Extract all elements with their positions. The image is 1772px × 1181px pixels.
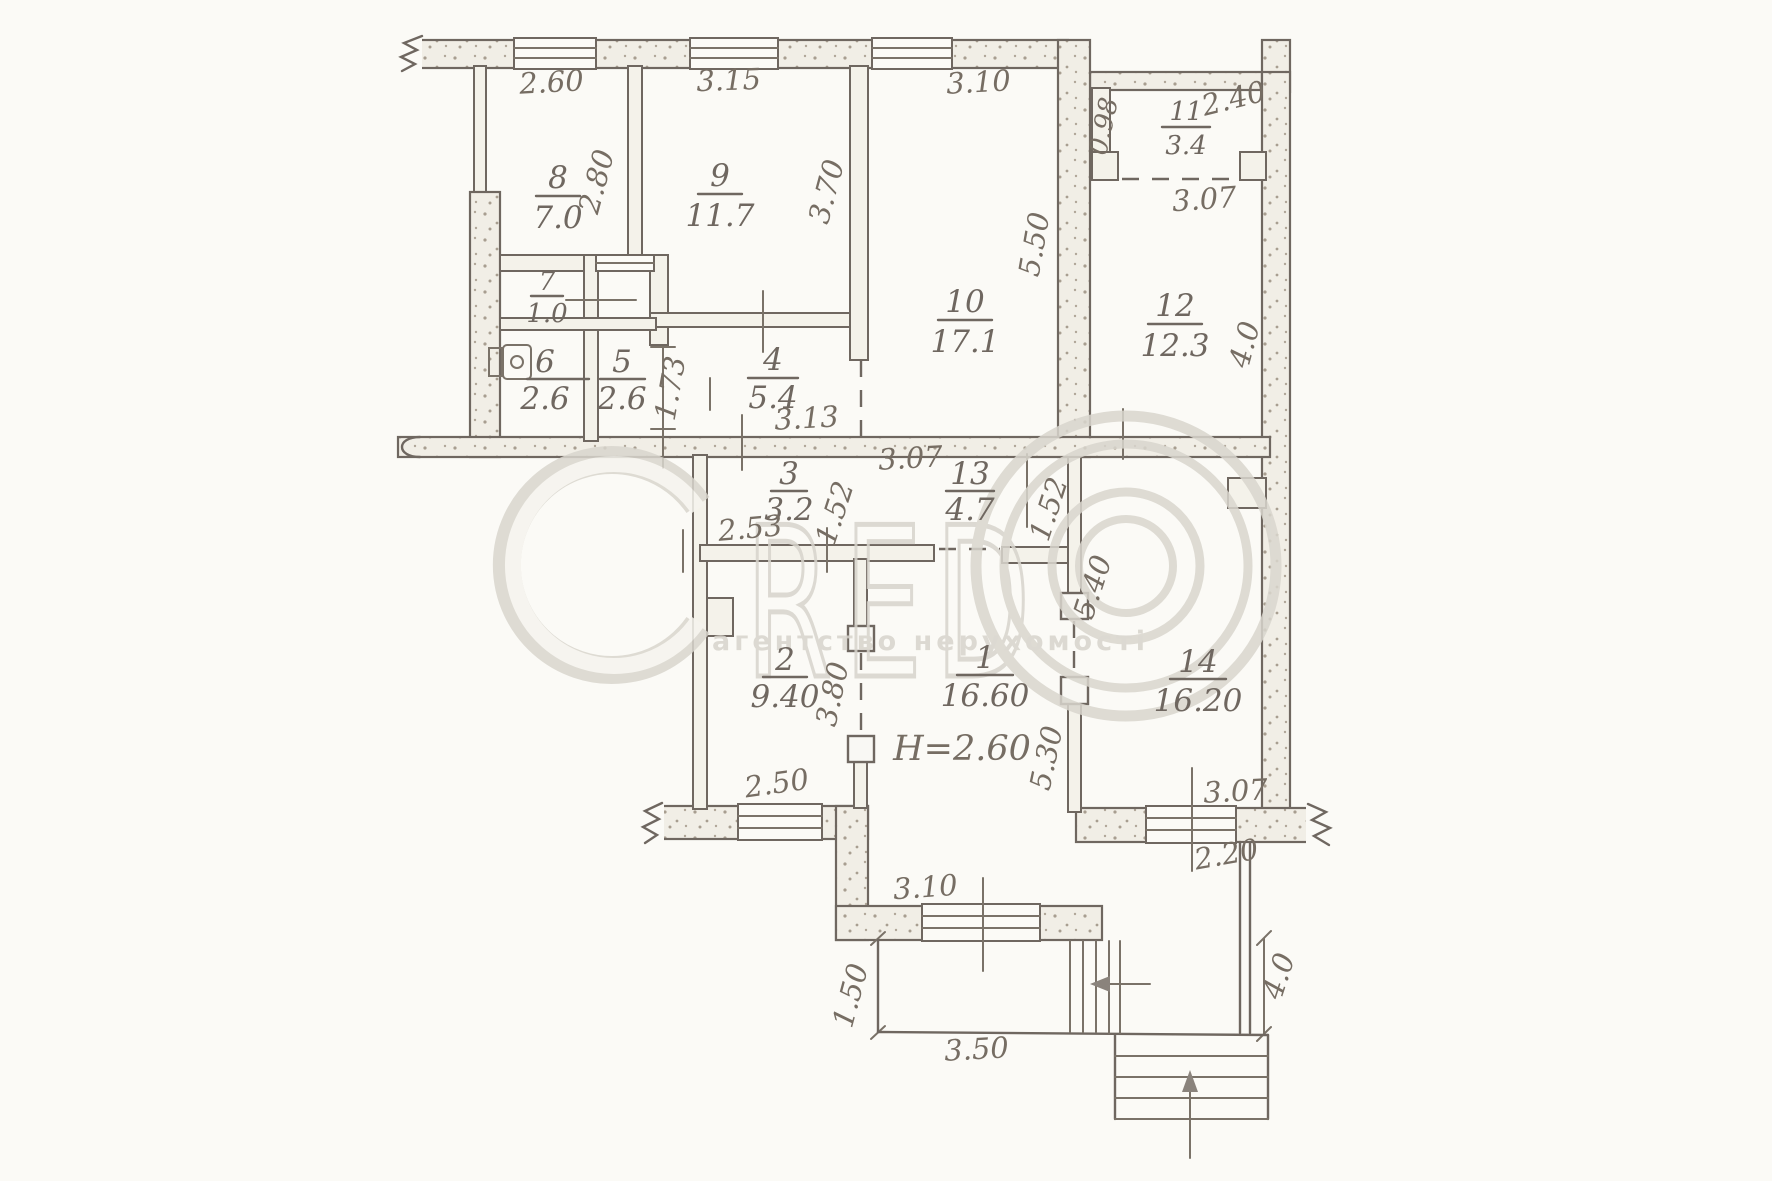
room-14-area: 16.20 (1154, 683, 1243, 719)
dim-room14-window: 3.07 (1202, 772, 1269, 809)
room-8-number: 8 (548, 160, 568, 196)
dim-room3-width: 2.53 (715, 508, 783, 548)
dim-side-room8: 2.80 (571, 146, 621, 218)
room-6-label: 6 2.6 (519, 344, 589, 417)
room-14-number: 14 (1178, 644, 1217, 680)
window-room2 (738, 804, 822, 840)
dim-room4-width: 3.13 (773, 399, 839, 436)
room-2-number: 2 (774, 642, 795, 678)
dim-corridor-width: 3.07 (877, 439, 944, 476)
room-13-area: 4.7 (944, 492, 995, 528)
room-9-label: 9 11.7 (685, 158, 754, 234)
room-5-label: 5 2.6 (596, 344, 646, 417)
room-7-number: 7 (539, 267, 556, 297)
room-9-area: 11.7 (685, 198, 754, 234)
dim-room2-window: 2.50 (741, 762, 811, 805)
room-4-number: 4 (762, 342, 783, 378)
room-13-label: 13 4.7 (944, 456, 995, 528)
porch (878, 940, 1268, 1035)
room-5-number: 5 (612, 344, 632, 380)
floor-plan-canvas: RED агентство нерухомості 8 7.0 9 11.7 1… (0, 0, 1772, 1181)
dim-side-room12: 4.0 (1222, 318, 1267, 372)
room-6-number: 6 (535, 344, 555, 380)
room-11-area: 3.4 (1165, 131, 1206, 161)
room-11-number: 11 (1169, 97, 1202, 127)
room-10-area: 17.1 (930, 324, 999, 360)
dim-stairs-side: 4.0 (1255, 949, 1302, 1004)
room-1-number: 1 (975, 640, 995, 676)
room-7-area: 1.0 (526, 299, 567, 329)
room-7-label: 7 1.0 (526, 267, 567, 329)
room-12-area: 12.3 (1140, 328, 1209, 364)
room-3-number: 3 (779, 456, 799, 492)
dim-room1-window: 3.10 (892, 868, 959, 906)
room-13-number: 13 (950, 456, 989, 492)
room-5-area: 2.6 (596, 381, 646, 417)
dim-top-room9: 3.15 (696, 62, 762, 98)
dim-top-room10: 3.10 (945, 63, 1011, 100)
room-10-number: 10 (945, 284, 984, 320)
stairs-up-arrow (1182, 1070, 1198, 1158)
room-6-area: 2.6 (519, 381, 569, 417)
dim-side-room9: 3.70 (802, 156, 852, 227)
dim-hall-upper: 1.73 (648, 354, 693, 424)
room-10-label: 10 17.1 (930, 284, 999, 360)
room-9-number: 9 (710, 158, 730, 194)
dim-porch-depth: 1.50 (826, 960, 876, 1031)
window-room10 (872, 38, 952, 69)
ceiling-height-note: H=2.60 (892, 729, 1031, 769)
dim-top-room8: 2.60 (517, 63, 584, 100)
room-12-label: 12 12.3 (1140, 288, 1209, 364)
dim-porch-width: 3.50 (943, 1030, 1009, 1067)
room-1-area: 16.60 (941, 678, 1030, 714)
room-12-number: 12 (1155, 288, 1194, 324)
window-room1 (922, 904, 1040, 941)
scanned-floor-plan-page: RED агентство нерухомості 8 7.0 9 11.7 1… (0, 0, 1772, 1181)
room-2-area: 9.40 (750, 679, 819, 715)
dim-side-room10: 5.50 (1012, 210, 1057, 280)
dim-room12-width: 3.07 (1171, 180, 1238, 218)
window-hall (596, 255, 654, 271)
